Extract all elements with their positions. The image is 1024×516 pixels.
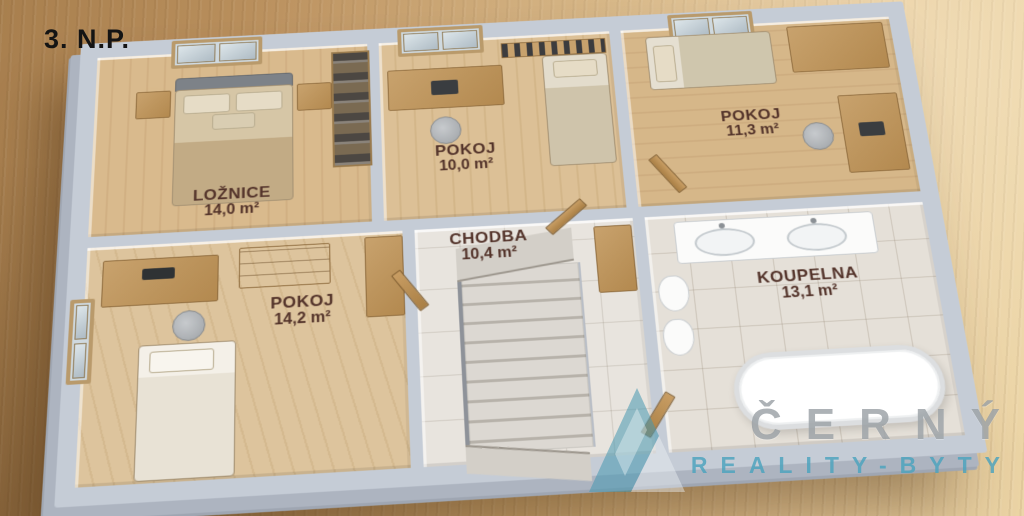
pillow-icon [653, 45, 678, 82]
cerny-logo-icon [585, 384, 689, 494]
window-icon [397, 25, 484, 57]
skylight-window-icon [171, 36, 262, 69]
single-bed-icon [133, 340, 236, 482]
dresser-icon [239, 243, 331, 289]
laptop-icon [431, 80, 459, 96]
pillow-icon [183, 93, 230, 114]
window-pane [72, 343, 86, 379]
floor-title: 3. N.P. [44, 24, 130, 55]
monitor-icon [142, 267, 175, 280]
staircase-icon [457, 262, 596, 454]
pillow-icon [553, 59, 598, 78]
watermark: ČERNÝ REALITY-BYTY [585, 384, 1000, 494]
hall-cabinet-icon [593, 224, 638, 293]
watermark-tagline: REALITY-BYTY [691, 452, 1013, 479]
window-pane [403, 32, 439, 52]
window-pane [442, 30, 478, 50]
throw-pillow-icon [212, 112, 255, 130]
sink-icon [785, 222, 849, 253]
nightstand-icon [135, 91, 171, 120]
nightstand-icon [297, 82, 332, 111]
pillow-icon [236, 91, 283, 112]
laptop-icon [858, 121, 886, 136]
sink-icon [693, 227, 757, 258]
watermark-brand: ČERNÝ [750, 400, 1024, 450]
window-pane [219, 42, 257, 62]
wardrobe-shelves-icon [331, 50, 372, 167]
desk-icon [387, 65, 505, 111]
window-pane [177, 44, 215, 64]
watermark-text: ČERNÝ REALITY-BYTY [691, 400, 1000, 479]
single-bed-icon [542, 53, 617, 167]
floorplan-render: 3. N.P. [0, 0, 1024, 516]
window-icon [66, 299, 96, 385]
pillow-icon [149, 348, 214, 373]
single-bed-icon [645, 31, 777, 90]
stair-winder-icon [465, 445, 592, 481]
window-pane [74, 305, 88, 340]
wardrobe-icon [786, 22, 890, 73]
desk-icon [101, 255, 219, 308]
